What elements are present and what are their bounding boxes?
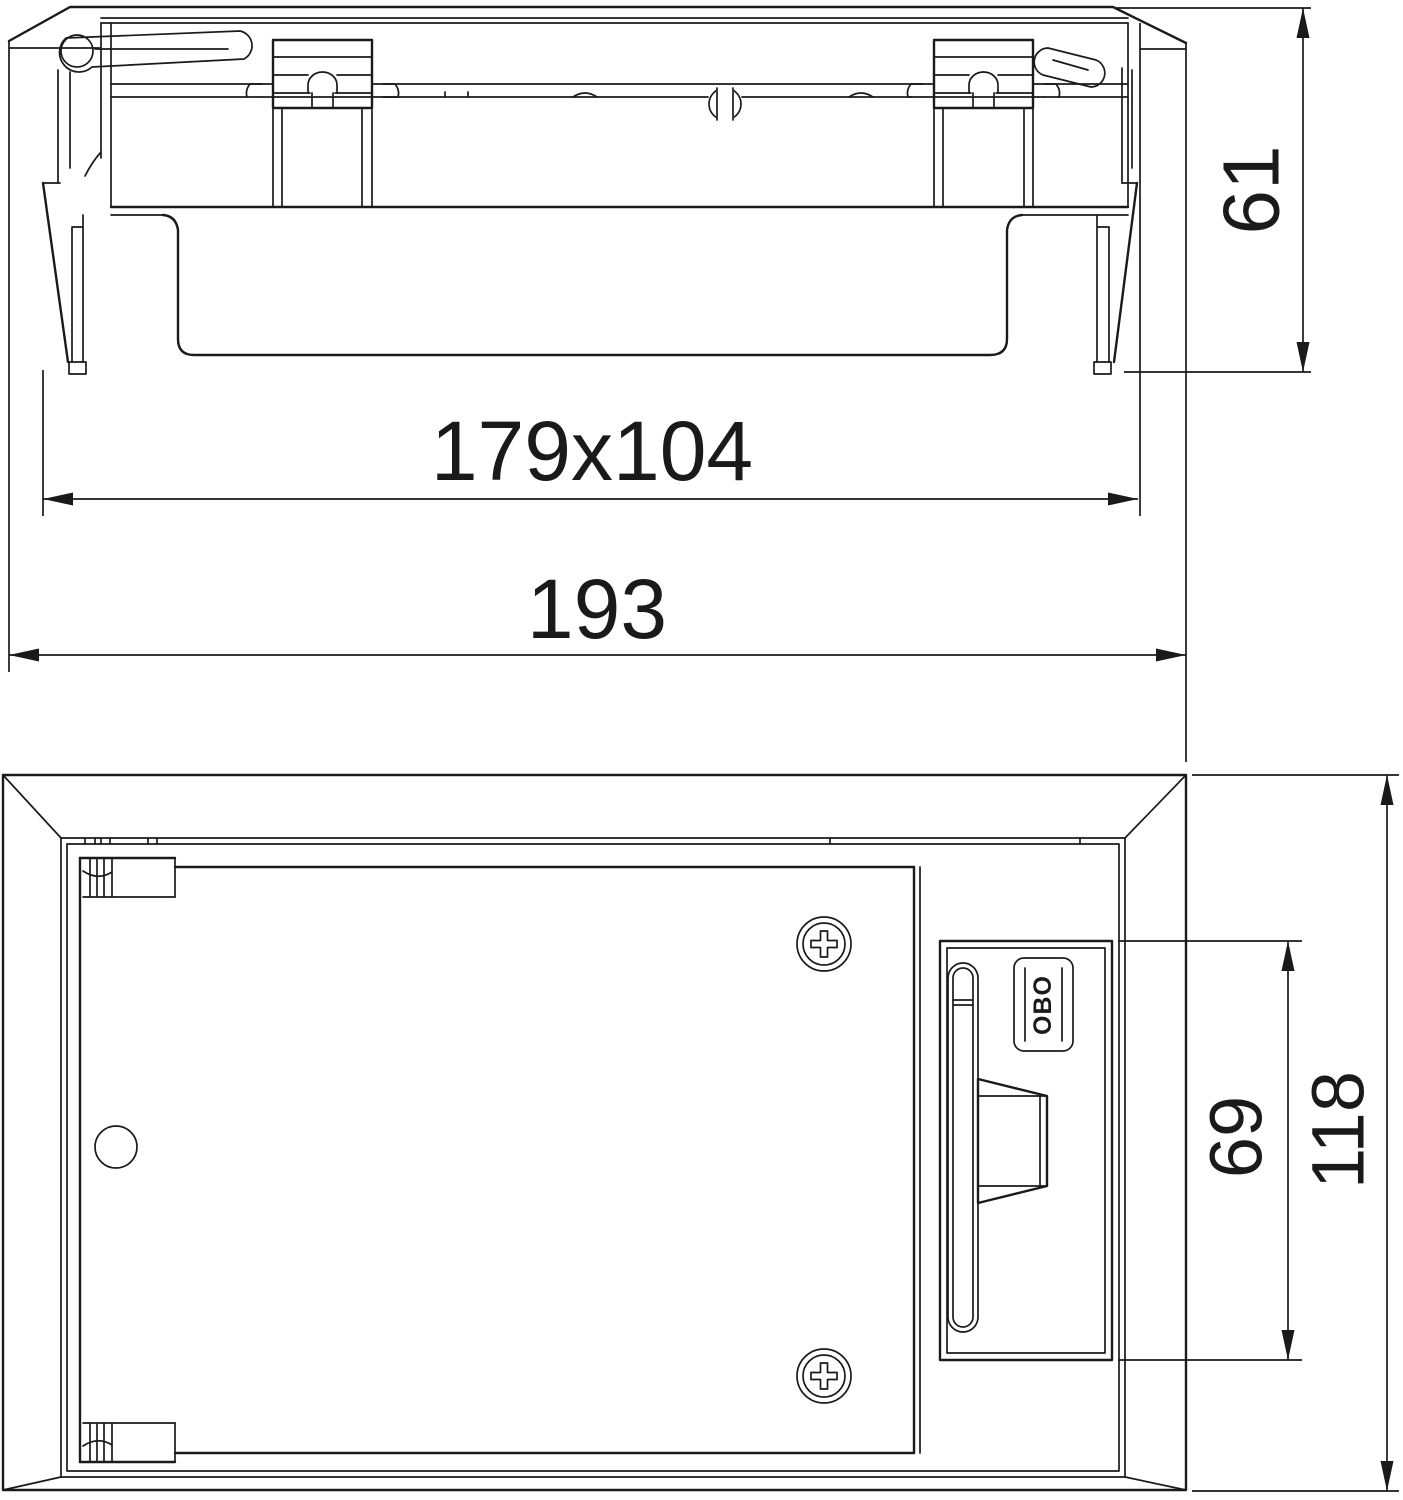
lever-pivot — [61, 35, 93, 67]
right-lever — [1034, 48, 1105, 87]
obo-logo-text: OBO — [1029, 975, 1057, 1035]
sub-frame-rails — [111, 84, 1128, 97]
obo-logo: OBO — [1014, 958, 1073, 1051]
left-wall-claw — [43, 23, 252, 374]
lid — [80, 858, 920, 1462]
finger-hole — [95, 1126, 137, 1168]
device-tub — [111, 207, 1128, 355]
dimension-latch-69: 69 — [1118, 941, 1302, 1360]
right-clamp-tower — [934, 40, 1033, 207]
latch-module: OBO — [940, 941, 1112, 1360]
latch-wedge — [978, 1079, 1047, 1203]
screw-bottom — [797, 1349, 851, 1403]
left-clamp-tower — [273, 40, 372, 207]
dimension-label-height: 61 — [1207, 146, 1296, 235]
right-wall-claw — [1034, 23, 1137, 374]
dimension-height-61: 61 — [1115, 8, 1311, 372]
hinge-bottom — [83, 1423, 175, 1462]
hinge-top — [83, 858, 175, 897]
screw-top — [797, 917, 851, 971]
dimension-label-cutout: 179x104 — [431, 404, 753, 498]
dimension-drawing: OBO 61 179x104 193 69 — [0, 0, 1403, 1500]
side-elevation-view — [9, 7, 1186, 374]
plan-view: OBO — [3, 775, 1186, 1490]
cover-plate — [9, 7, 1186, 49]
center-fixing-clip — [709, 85, 741, 123]
outer-frame — [3, 775, 1186, 1490]
dimension-label-latch: 69 — [1195, 1096, 1278, 1178]
technical-drawing-page: OBO 61 179x104 193 69 — [0, 0, 1403, 1500]
dimension-label-depth: 118 — [1297, 1071, 1380, 1189]
release-lever — [60, 31, 253, 72]
dimension-label-width: 193 — [527, 562, 667, 656]
